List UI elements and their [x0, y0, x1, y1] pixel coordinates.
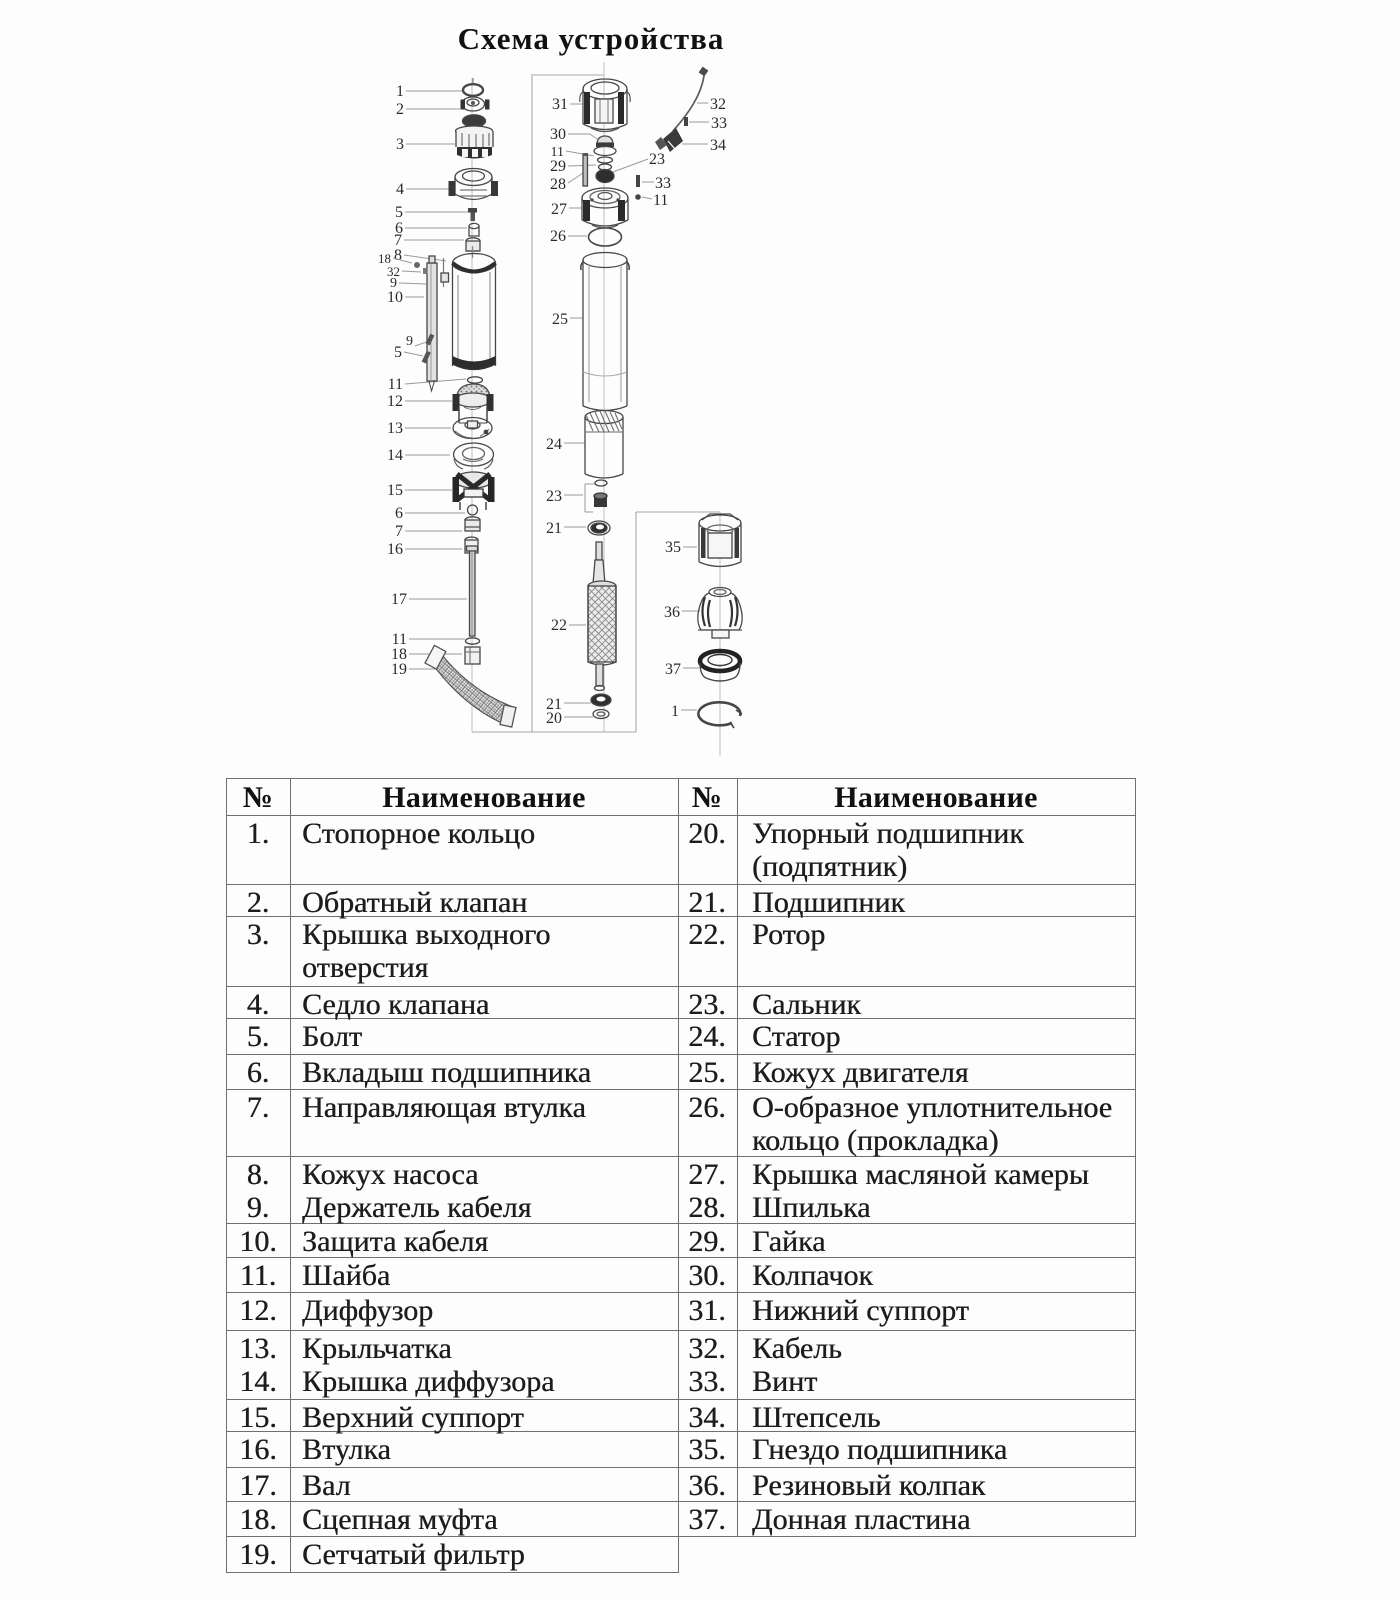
svg-text:14: 14	[387, 447, 403, 464]
svg-text:25: 25	[552, 311, 568, 328]
svg-text:11: 11	[388, 376, 403, 393]
svg-text:6: 6	[395, 505, 403, 522]
svg-text:13: 13	[387, 420, 403, 437]
svg-text:35: 35	[665, 539, 681, 556]
svg-text:8: 8	[394, 247, 402, 264]
svg-text:24: 24	[546, 436, 562, 453]
svg-text:4: 4	[396, 181, 404, 198]
svg-text:7: 7	[395, 523, 403, 540]
svg-text:33: 33	[711, 115, 727, 132]
svg-text:1: 1	[671, 703, 679, 720]
svg-text:5: 5	[394, 344, 402, 361]
svg-text:19: 19	[391, 661, 407, 678]
svg-text:37: 37	[665, 661, 681, 678]
svg-text:5: 5	[395, 204, 403, 221]
svg-text:12: 12	[387, 393, 403, 410]
svg-text:31: 31	[552, 96, 568, 113]
svg-text:32: 32	[710, 96, 726, 113]
svg-text:22: 22	[551, 617, 567, 634]
svg-text:1: 1	[396, 83, 404, 100]
svg-text:15: 15	[387, 482, 403, 499]
svg-text:11: 11	[653, 192, 668, 209]
svg-text:20: 20	[546, 710, 562, 727]
svg-text:9: 9	[406, 334, 413, 349]
svg-text:23: 23	[546, 488, 562, 505]
svg-text:36: 36	[664, 604, 680, 621]
svg-text:16: 16	[387, 541, 403, 558]
svg-text:3: 3	[396, 136, 404, 153]
svg-text:26: 26	[550, 228, 566, 245]
svg-text:27: 27	[551, 201, 567, 218]
svg-text:34: 34	[710, 137, 726, 154]
svg-text:33: 33	[655, 175, 671, 192]
svg-text:2: 2	[396, 101, 404, 118]
svg-text:10: 10	[387, 289, 403, 306]
svg-text:21: 21	[546, 520, 562, 537]
svg-text:17: 17	[391, 591, 407, 608]
svg-text:28: 28	[550, 176, 566, 193]
svg-text:23: 23	[649, 151, 665, 168]
svg-text:30: 30	[550, 126, 566, 143]
svg-text:29: 29	[550, 158, 566, 175]
